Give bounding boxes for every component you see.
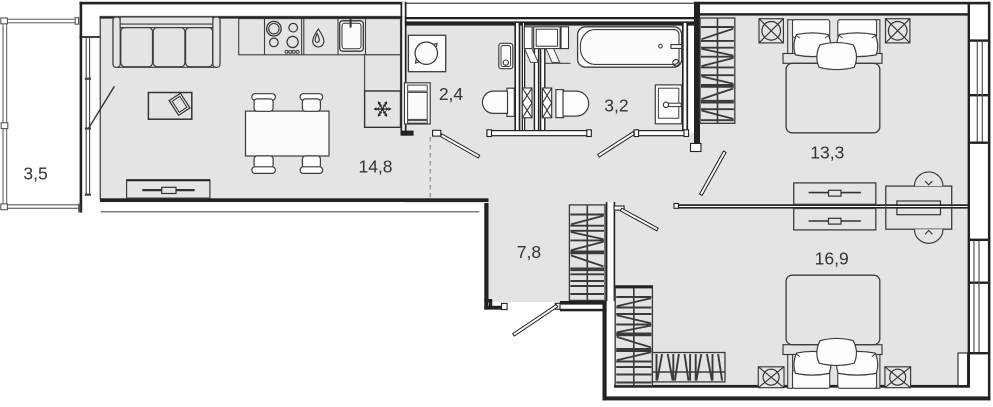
svg-text:2,4: 2,4	[439, 84, 464, 104]
svg-text:13,3: 13,3	[810, 143, 844, 163]
svg-text:3,2: 3,2	[604, 95, 628, 115]
svg-text:3,5: 3,5	[23, 163, 47, 183]
svg-text:7,8: 7,8	[517, 242, 541, 262]
svg-text:16,9: 16,9	[815, 248, 849, 268]
svg-text:14,8: 14,8	[358, 157, 392, 177]
